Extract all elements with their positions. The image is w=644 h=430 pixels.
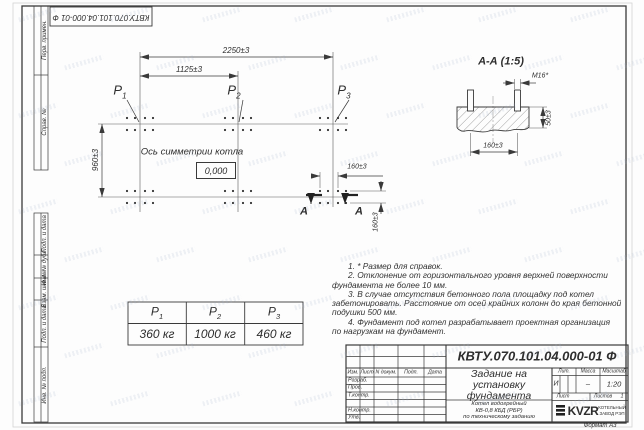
th-p2-base: Р <box>209 305 217 319</box>
p1-base: Р <box>113 83 122 98</box>
strip-label-inv-podl: Инв. № подл. <box>42 366 48 403</box>
elevation-mark: 0,000 <box>205 166 228 176</box>
stamp-doc-number: КВТУ.070.101.04.000-01 Ф <box>458 350 617 363</box>
table-header-p3: Р3 <box>268 306 280 321</box>
th-p3-sub: 3 <box>276 312 280 321</box>
plan-label-p3: Р3 <box>337 84 350 101</box>
text-layer: КВТУ.070.101.04.000-01 Ф Перв. примен. С… <box>0 0 644 430</box>
stamp-listov-value: 1 <box>620 394 623 400</box>
table-value-p3: 460 кг <box>257 328 292 340</box>
th-p2-sub: 2 <box>217 312 221 321</box>
notes-block: 1. * Размер для справок. 2. Отклонение о… <box>332 262 634 336</box>
stamp-massa-label: Масса <box>581 369 596 374</box>
stamp-role-tkontr: Т.контр. <box>348 393 370 398</box>
section-letter-left: А <box>300 207 308 218</box>
th-p3-base: Р <box>268 305 276 319</box>
dim-960: 960±3 <box>92 149 100 171</box>
kvzr-logo-sub2: ЗАВОД РЭП <box>599 411 624 415</box>
p2-base: Р <box>227 83 236 98</box>
strip-label-vzam-inv: Взам. инв. № <box>42 270 48 307</box>
dim-160-vertical: 160±3 <box>373 212 380 231</box>
table-header-p2: Р2 <box>209 306 221 321</box>
table-value-p1: 360 кг <box>140 328 175 340</box>
p3-sub: 3 <box>346 91 350 100</box>
note-line: по нагрузкам на фундамент. <box>332 327 634 336</box>
dim-2250: 2250±3 <box>223 47 250 55</box>
table-header-p1: Р1 <box>151 306 163 321</box>
format-label: Формат А3 <box>584 423 617 429</box>
th-p1-base: Р <box>151 305 159 319</box>
stamp-col-podp: Подп. <box>404 370 418 375</box>
stamp-role-prov: Пров. <box>348 386 362 391</box>
doc-number-top: КВТУ.070.101.04.000-01 Ф <box>53 13 150 21</box>
stamp-product-line-3: по техническому заданию <box>463 415 535 421</box>
strip-label-perv-primen: Перв. примен. <box>42 20 48 60</box>
stamp-role-utv: Утв. <box>348 415 360 420</box>
strip-label-podp-data-1: Подп. и дата <box>42 215 48 253</box>
stamp-title-line-2: установку <box>473 380 525 391</box>
stamp-col-list: Лист <box>360 370 373 375</box>
stamp-role-razrab: Разраб. <box>348 378 368 383</box>
table-value-p2: 1000 кг <box>194 328 236 340</box>
elevation-mark-box: 0,000 <box>196 162 236 179</box>
stamp-masshtab-value: 1:20 <box>607 380 622 388</box>
stamp-list-label: Лист <box>557 394 570 399</box>
drawing-sheet: КВТУ.070.101.04.000-01 Ф Перв. примен. С… <box>0 0 644 430</box>
stamp-masshtab-label: Масштаб <box>602 369 625 374</box>
dim-m16: М16* <box>532 73 548 80</box>
dim-160-section: 160±3 <box>483 143 502 150</box>
stamp-title-line-1: Задание на <box>471 369 527 380</box>
stamp-col-izm: Изм. <box>347 370 358 375</box>
stamp-massa-value: – <box>586 380 590 388</box>
section-title: А-А (1:5) <box>478 57 524 68</box>
dim-160-horizontal: 160±3 <box>347 164 366 171</box>
th-p1-sub: 1 <box>159 312 163 321</box>
stamp-lit-value: И <box>553 381 558 388</box>
stamp-lit-label: Лит. <box>558 369 570 374</box>
stamp-col-data: Дата <box>428 370 442 375</box>
stamp-title-line-3: фундамента <box>467 391 532 402</box>
stamp-role-nkontr: Н.контр. <box>348 408 371 413</box>
stamp-col-ndok: N докум. <box>376 370 397 375</box>
plan-label-p2: Р2 <box>227 84 240 101</box>
dim-1125: 1125±3 <box>176 66 202 74</box>
dim-50: 50±3 <box>546 110 553 126</box>
plan-label-p1: Р1 <box>113 84 126 101</box>
p3-base: Р <box>337 83 346 98</box>
kvzr-logo-text: KVZR <box>568 405 599 417</box>
p1-sub: 1 <box>122 91 126 100</box>
section-letter-right: А <box>355 207 363 218</box>
strip-label-sprav-no: Справ. № <box>42 108 48 135</box>
strip-label-podp-data-2: Подп. и дата <box>42 305 48 343</box>
stamp-listov-label: Листов <box>594 394 612 399</box>
axis-of-symmetry-label: Ось симметрии котла <box>141 147 243 157</box>
p2-sub: 2 <box>236 91 240 100</box>
kvzr-logo-sub1: КОТЕЛЬНЫЙ <box>598 405 626 409</box>
